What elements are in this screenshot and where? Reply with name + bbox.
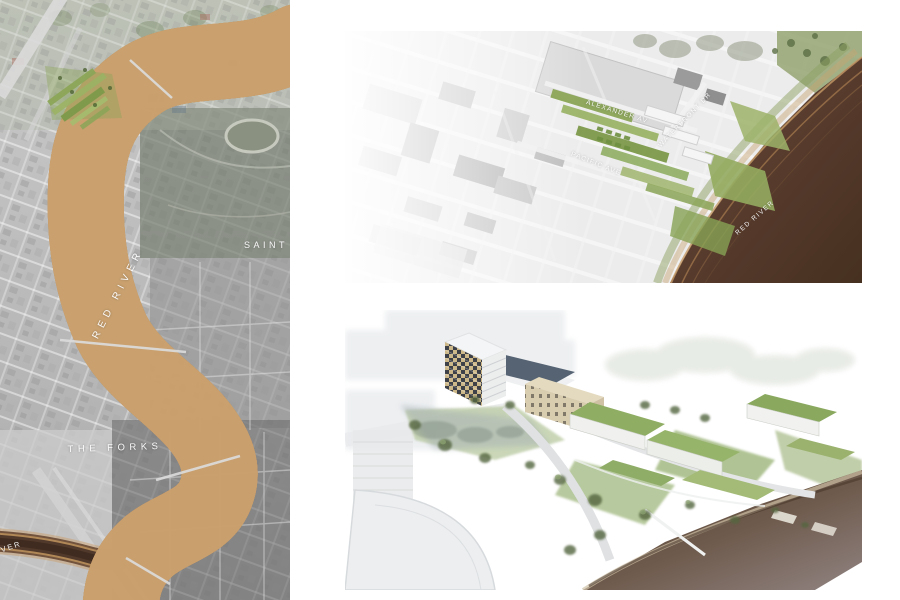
context-map-panel: RED RIVER SAINT B THE FORKS RIVER xyxy=(0,0,290,600)
rendering-art xyxy=(345,310,862,590)
presentation-board: RED RIVER SAINT B THE FORKS RIVER xyxy=(0,0,900,600)
site-plan-panel: ALEXANDER AV WATERFRONT DR PACIFIC AVE R… xyxy=(345,31,862,283)
saint-boniface-label: SAINT B xyxy=(244,240,290,250)
site-plan-art xyxy=(345,31,862,283)
context-map-art xyxy=(0,0,290,600)
rendering-panel xyxy=(345,310,862,590)
